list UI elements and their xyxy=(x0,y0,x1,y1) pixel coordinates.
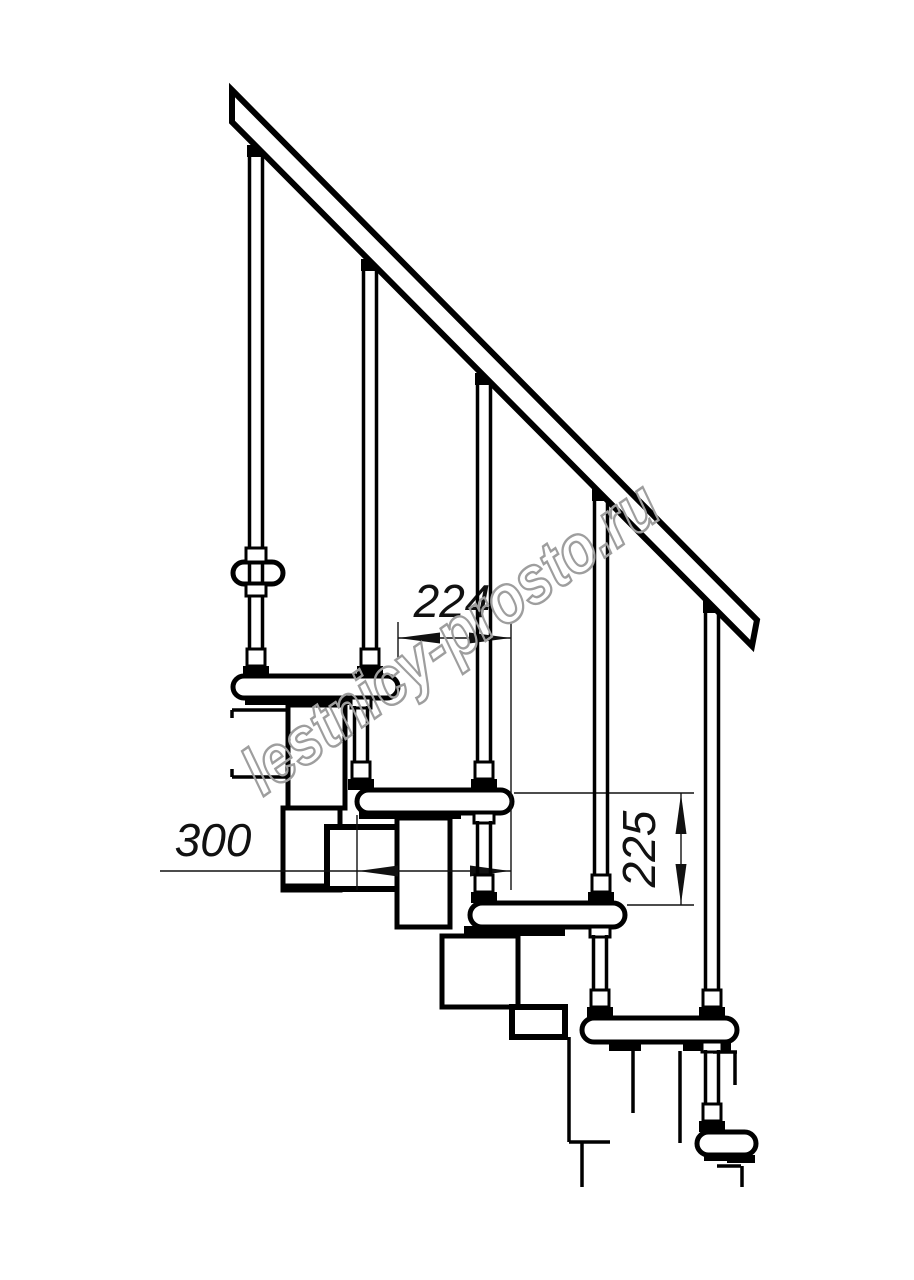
tread-5 xyxy=(697,1132,756,1155)
baluster-5-post xyxy=(706,613,719,1011)
baluster-2-lower-foot-collar xyxy=(352,762,370,779)
baluster-3-lower-foot-plate xyxy=(471,892,497,903)
baluster-4-foot-plate xyxy=(588,892,614,903)
dim-225-label: 225 xyxy=(613,810,665,888)
module-box-3 xyxy=(327,827,403,889)
staircase-technical-drawing-page: 224 300 225 xyxy=(0,0,914,1280)
baluster-1-foot-collar xyxy=(247,649,265,666)
dim-300-label: 300 xyxy=(175,814,252,866)
baluster-3-lower-foot-collar xyxy=(475,875,493,892)
dim-225-arrow-down xyxy=(676,864,687,904)
baluster-5 xyxy=(699,601,725,1132)
baluster-3-foot-plate xyxy=(471,779,497,790)
baluster-5-foot-plate xyxy=(699,1007,725,1018)
baluster-5-lower-foot-plate xyxy=(699,1121,725,1132)
staircase-side-view-drawing: 224 300 225 xyxy=(0,0,914,1280)
baluster-3-foot-collar xyxy=(475,762,493,779)
tread-2 xyxy=(357,790,512,813)
baluster-1-foot-plate xyxy=(243,666,269,677)
baluster-5-lower-foot-collar xyxy=(703,1104,721,1121)
baluster-1-upper-sleeve xyxy=(246,548,266,562)
module-box-4 xyxy=(397,818,450,927)
dim-225-arrow-up xyxy=(676,794,687,834)
baluster-1 xyxy=(243,145,269,677)
upper-landing-tread-end xyxy=(233,562,283,584)
baluster-4-lower-foot-plate xyxy=(587,1007,613,1018)
baluster-5-foot-collar xyxy=(703,990,721,1007)
baluster-2-lower-foot-plate xyxy=(348,779,374,790)
tread5-module-cut-lines xyxy=(717,1166,742,1187)
tread-3 xyxy=(470,903,625,927)
baluster-4-foot-collar xyxy=(592,875,610,892)
baluster-4-lower-foot-collar xyxy=(591,990,609,1007)
baluster-2-post xyxy=(364,271,377,670)
baluster-1-lower-sleeve xyxy=(246,584,266,596)
tread-4 xyxy=(582,1018,737,1042)
module-box-5 xyxy=(442,936,518,1007)
module-box-6 xyxy=(512,1007,565,1037)
